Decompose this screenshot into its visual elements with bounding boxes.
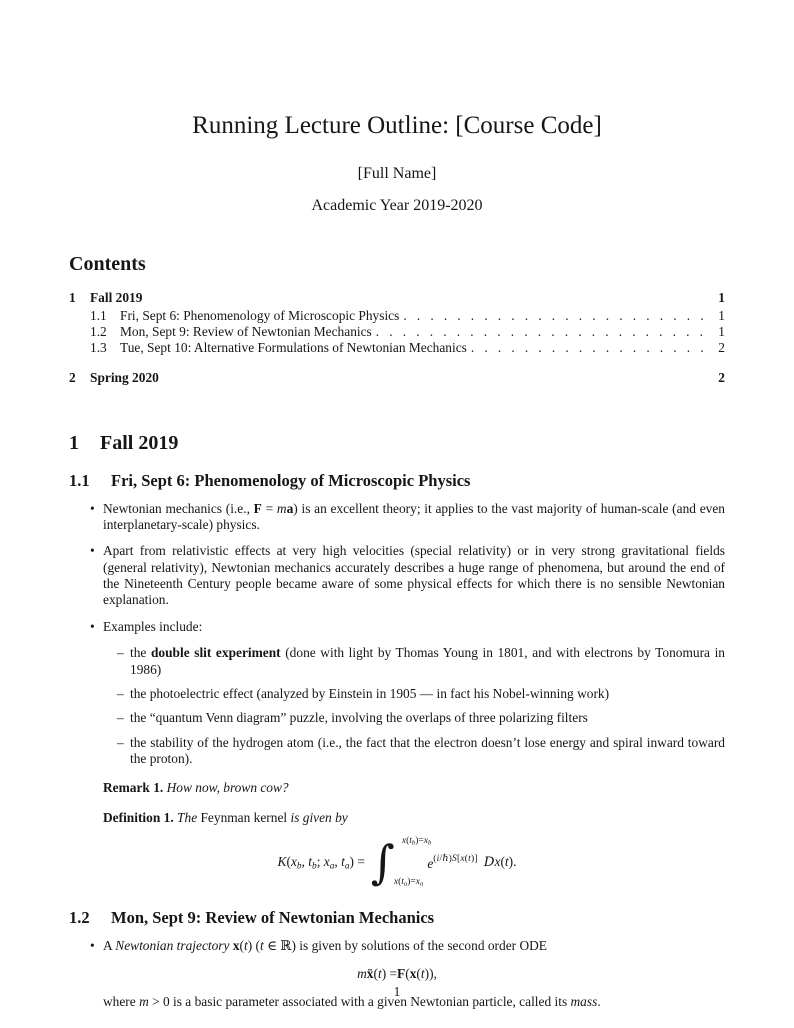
toc-entry-page: 2 xyxy=(709,370,725,386)
page-number: 1 xyxy=(0,984,794,1000)
toc-entry-fall-2019[interactable]: 1 Fall 2019 1 xyxy=(69,290,725,306)
equation-lhs: K(xb, tb; xa, ta) = xyxy=(278,854,365,873)
integral-limits: x(tb)=xb x(ta)=xa xyxy=(396,835,425,891)
integral: ∫ x(tb)=xb x(ta)=xa xyxy=(371,835,425,891)
integral-sign-icon: ∫ xyxy=(371,839,395,885)
example-item-hydrogen-atom: the stability of the hydrogen atom (i.e.… xyxy=(69,735,725,768)
exp-superscript: (i/ℏ)S[x(t)] xyxy=(433,854,477,864)
toc-entry-page: 1 xyxy=(709,324,725,340)
bullet-list-1-1: Newtonian mechanics (i.e., F = ma) is an… xyxy=(69,501,725,892)
feynman-kernel-equation: K(xb, tb; xa, ta) = ∫ x(tb)=xb x(ta)=xa … xyxy=(69,834,725,892)
toc-entry-1-2[interactable]: 1.2 Mon, Sept 9: Review of Newtonian Mec… xyxy=(69,324,725,340)
toc-entry-page: 1 xyxy=(709,290,725,306)
toc-entry-number: 1 xyxy=(69,290,90,306)
subsection-heading-1-2: 1.2Mon, Sept 9: Review of Newtonian Mech… xyxy=(69,909,725,928)
definition-body: The Feynman kernel is given by xyxy=(177,810,348,825)
toc-entry-number: 2 xyxy=(69,370,90,386)
subsection-number: 1.2 xyxy=(69,909,111,928)
example-item-quantum-venn: the “quantum Venn diagram” puzzle, invol… xyxy=(69,710,725,726)
toc-dot-leader xyxy=(376,324,705,340)
bullet-item-newtonian-trajectory: A Newtonian trajectory x(t) (t ∈ ℝ) is g… xyxy=(69,938,725,954)
subsection-heading-1-1: 1.1Fri, Sept 6: Phenomenology of Microsc… xyxy=(69,472,725,491)
toc-entry-page: 1 xyxy=(709,308,725,324)
toc-entry-label: Fri, Sept 6: Phenomenology of Microscopi… xyxy=(120,308,399,324)
toc-entry-label: Spring 2020 xyxy=(90,370,159,386)
document-date: Academic Year 2019-2020 xyxy=(69,196,725,216)
toc-entry-1-1[interactable]: 1.1 Fri, Sept 6: Phenomenology of Micros… xyxy=(69,308,725,324)
definition-1: Definition 1. The Feynman kernel is give… xyxy=(69,810,725,826)
subsection-title: Fri, Sept 6: Phenomenology of Microscopi… xyxy=(111,471,470,490)
document-title: Running Lecture Outline: [Course Code] xyxy=(69,112,725,141)
section-heading-fall-2019: 1Fall 2019 xyxy=(69,432,725,455)
subsection-title: Mon, Sept 9: Review of Newtonian Mechani… xyxy=(111,908,434,927)
toc-entry-label: Fall 2019 xyxy=(90,290,142,306)
toc-dot-leader xyxy=(403,308,705,324)
contents-heading: Contents xyxy=(69,253,725,275)
bullet-item-examples-include: Examples include: xyxy=(69,619,725,635)
toc-entry-1-3[interactable]: 1.3 Tue, Sept 10: Alternative Formulatio… xyxy=(69,340,725,356)
toc-entry-number: 1.3 xyxy=(90,340,120,356)
newton-ode-equation: m ẍ(t) = F(x(t)), xyxy=(69,966,725,982)
equation-exponential: e(i/ℏ)S[x(t)] xyxy=(427,854,477,872)
toc-entry-number: 1.2 xyxy=(90,324,120,340)
toc-entry-page: 2 xyxy=(709,340,725,356)
toc-entry-spring-2020[interactable]: 2 Spring 2020 2 xyxy=(69,370,725,386)
toc-entry-number: 1.1 xyxy=(90,308,120,324)
table-of-contents: 1 Fall 2019 1 1.1 Fri, Sept 6: Phenomeno… xyxy=(69,290,725,386)
integral-upper-limit: x(tb)=xb xyxy=(402,837,431,847)
document-page: Running Lecture Outline: [Course Code] [… xyxy=(0,0,794,1028)
example-item-photoelectric: the photoelectric effect (analyzed by Ei… xyxy=(69,686,725,702)
bullet-item-relativistic-effects: Apart from relativistic effects at very … xyxy=(69,543,725,608)
equation-measure-term: Dx(t). xyxy=(484,854,517,871)
toc-entry-label: Mon, Sept 9: Review of Newtonian Mechani… xyxy=(120,324,372,340)
section-number: 1 xyxy=(69,432,100,455)
toc-entry-label: Tue, Sept 10: Alternative Formulations o… xyxy=(120,340,467,356)
subsection-number: 1.1 xyxy=(69,472,111,491)
integral-lower-limit: x(ta)=xa xyxy=(394,878,423,888)
examples-sublist: the double slit experiment (done with li… xyxy=(69,645,725,767)
toc-dot-leader xyxy=(471,340,705,356)
title-block: Running Lecture Outline: [Course Code] [… xyxy=(69,112,725,216)
remark-1: Remark 1. How now, brown cow? xyxy=(69,780,725,796)
example-item-double-slit: the double slit experiment (done with li… xyxy=(69,645,725,678)
document-author: [Full Name] xyxy=(69,164,725,184)
definition-label: Definition 1. xyxy=(103,810,174,825)
bullet-item-newtonian-mechanics: Newtonian mechanics (i.e., F = ma) is an… xyxy=(69,501,725,534)
remark-label: Remark 1. xyxy=(103,780,163,795)
remark-body: How now, brown cow? xyxy=(167,780,289,795)
section-title: Fall 2019 xyxy=(100,432,178,454)
